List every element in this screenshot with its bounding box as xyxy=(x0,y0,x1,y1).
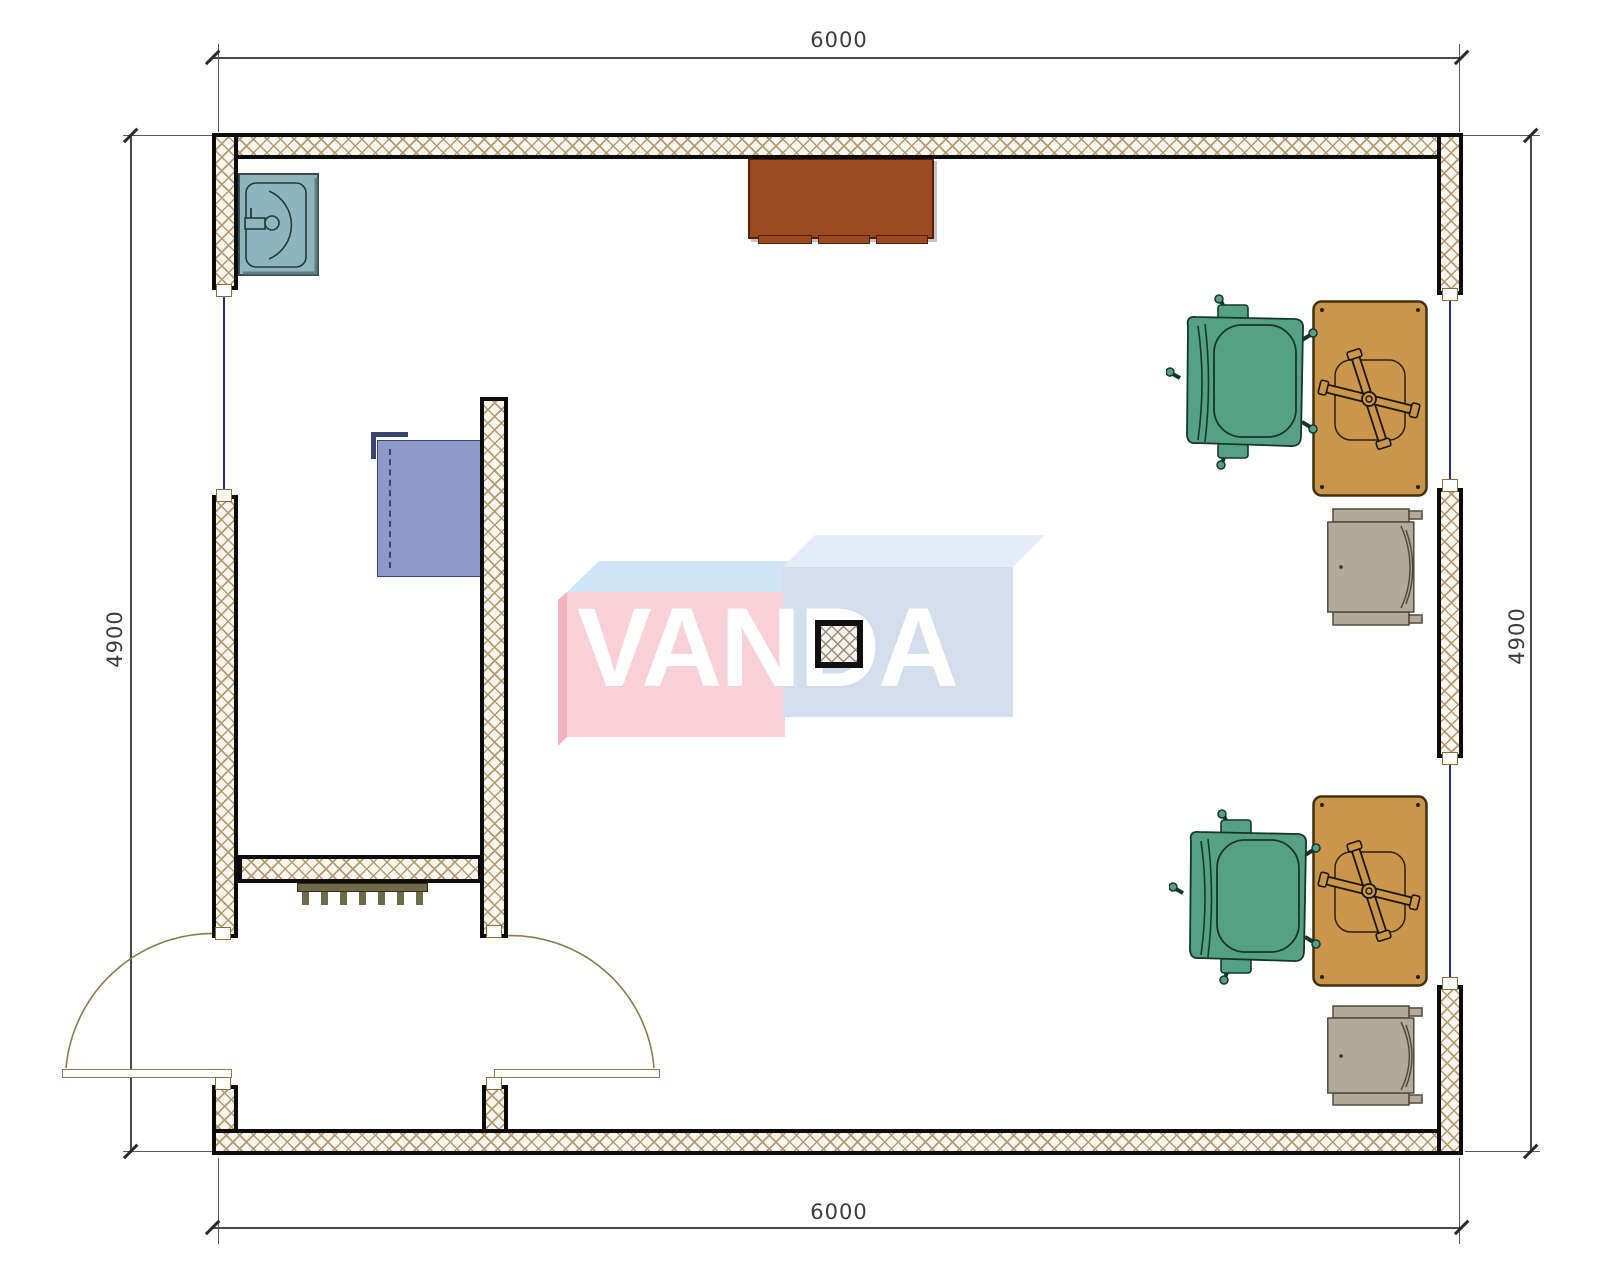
wall-right-upper xyxy=(1437,133,1463,295)
dimension-label-left: 4900 xyxy=(103,593,127,685)
dimension-label-bottom: 6000 xyxy=(769,1200,909,1224)
door-leaf-exterior xyxy=(62,1069,232,1078)
door-frame-cap xyxy=(215,927,231,940)
radiator xyxy=(297,883,428,892)
wardrobe-handle xyxy=(371,432,408,437)
sideboard-foot xyxy=(876,235,928,244)
watermark-text: VANDA xyxy=(577,592,957,704)
wall-interior-horizontal xyxy=(238,855,482,883)
wall-interior-vertical-stub xyxy=(482,1085,508,1133)
sideboard-foot xyxy=(818,235,870,244)
watermark-rightbox-top xyxy=(783,535,1045,567)
window-frame-cap xyxy=(216,284,232,297)
sink xyxy=(238,173,320,277)
extension-line xyxy=(123,1151,213,1152)
window-frame-cap xyxy=(1442,479,1458,492)
office-chair-bottom xyxy=(1169,809,1325,985)
window-frame-cap xyxy=(1442,977,1458,990)
dimension-label-right: 4900 xyxy=(1505,590,1529,682)
watermark-leftbox-side xyxy=(558,592,567,746)
sideboard xyxy=(748,158,934,239)
wall-interior-vertical xyxy=(480,397,508,938)
desk-top xyxy=(1312,300,1428,497)
window-right-upper xyxy=(1449,297,1451,487)
radiator-fins xyxy=(302,892,423,905)
wardrobe-door-line xyxy=(389,449,391,568)
door-frame-cap xyxy=(486,1077,502,1090)
dimension-line-right xyxy=(1530,135,1532,1153)
structural-column xyxy=(815,620,863,668)
wall-right-lower xyxy=(1437,985,1463,1155)
desk-bottom xyxy=(1312,795,1428,987)
window-right-lower xyxy=(1449,760,1451,984)
window-frame-cap xyxy=(1442,288,1458,301)
door-swing-arc-interior xyxy=(500,936,654,1068)
extension-line xyxy=(123,135,213,136)
printer-bottom xyxy=(1327,1004,1424,1109)
wardrobe-handle-hook xyxy=(371,432,376,459)
wardrobe xyxy=(377,440,485,577)
door-frame-cap xyxy=(215,1077,231,1090)
window-left xyxy=(223,292,225,494)
wall-left-upper xyxy=(212,133,238,290)
office-chair-top xyxy=(1166,294,1322,470)
dimension-label-top: 6000 xyxy=(769,28,909,52)
window-frame-cap xyxy=(216,489,232,502)
sideboard-foot xyxy=(758,235,812,244)
wall-left-middle xyxy=(212,495,238,938)
door-frame-cap xyxy=(486,925,502,938)
floor-plan: VANDA 6000 6000 4900 4900 xyxy=(0,0,1600,1280)
dimension-line-top xyxy=(212,57,1462,59)
door-leaf-interior xyxy=(494,1069,660,1078)
wall-bottom xyxy=(212,1129,1463,1155)
door-swing-arc-exterior xyxy=(66,933,226,1068)
extension-line xyxy=(218,1158,219,1244)
wall-top xyxy=(212,133,1463,159)
window-frame-cap xyxy=(1442,752,1458,765)
wall-right-middle xyxy=(1437,488,1463,758)
printer-top xyxy=(1327,507,1424,629)
dimension-line-bottom xyxy=(212,1227,1462,1229)
